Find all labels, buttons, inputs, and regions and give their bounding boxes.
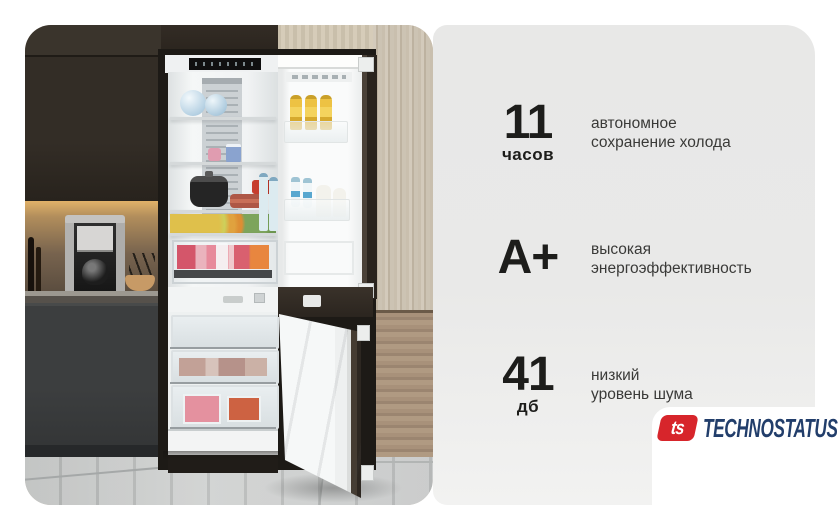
coffee-machine-head bbox=[77, 226, 113, 252]
freezer-drawer bbox=[171, 350, 279, 384]
ice-sphere bbox=[180, 90, 206, 116]
coffee-machine bbox=[65, 215, 125, 293]
cooking-pot bbox=[190, 176, 228, 207]
freezer-drawer bbox=[171, 385, 279, 429]
kitchen-photo bbox=[25, 25, 433, 505]
ts-monogram-text: ts bbox=[670, 419, 685, 438]
spec-energy-value-block: A+ bbox=[473, 238, 583, 281]
door-hinge bbox=[361, 465, 374, 481]
coffee-carafe bbox=[82, 259, 108, 285]
spec-energy-label: высокая энергоэффективность bbox=[591, 241, 806, 279]
control-panel-icons bbox=[195, 62, 255, 66]
base-cabinet bbox=[25, 303, 163, 445]
spec-autonomy-value-block: 11 часов bbox=[473, 103, 583, 164]
door-bin bbox=[284, 121, 348, 143]
crisper-drawer bbox=[172, 240, 278, 284]
fridge-door-open bbox=[278, 55, 377, 299]
frozen-container bbox=[183, 394, 221, 424]
spec-energy-value: A+ bbox=[473, 238, 583, 278]
product-banner: 11 часов автономное сохранение холода A+… bbox=[0, 0, 840, 530]
drawer-rail bbox=[170, 347, 276, 349]
spec-autonomy-value: 11 bbox=[473, 103, 583, 143]
door-bin bbox=[284, 241, 354, 275]
door-top-cap bbox=[278, 55, 362, 69]
dessert bbox=[208, 148, 221, 161]
ice-sphere bbox=[205, 94, 227, 116]
fridge-base-shadow bbox=[163, 451, 280, 461]
spec-autonomy: 11 часов автономное сохранение холода bbox=[473, 103, 806, 164]
spec-noise-level: 41 дб низкий уровень шума bbox=[473, 355, 806, 416]
door-hinge bbox=[358, 57, 374, 72]
wood-cabinet-panel-lower bbox=[370, 310, 433, 481]
countertop bbox=[25, 291, 163, 303]
frozen-container bbox=[227, 396, 261, 422]
water-bottle bbox=[259, 173, 268, 231]
technostatus-logo: ts TECHNOSTATUS bbox=[659, 414, 840, 442]
brand-name: TECHNOSTATUS bbox=[703, 415, 838, 441]
spec-noise-unit: дб bbox=[473, 398, 583, 416]
fridge-control-panel bbox=[189, 58, 261, 70]
spec-noise-value-block: 41 дб bbox=[473, 355, 583, 416]
water-bottle bbox=[269, 177, 278, 231]
frozen-food bbox=[179, 358, 267, 376]
door-shelf-label bbox=[286, 72, 352, 82]
glass-shelf bbox=[170, 117, 276, 120]
brand-emblem bbox=[223, 296, 243, 303]
spec-autonomy-label: автономное сохранение холода bbox=[591, 115, 806, 153]
coffee-machine-side bbox=[116, 223, 125, 293]
glass-shelf bbox=[170, 233, 276, 236]
cabinet-between-doors bbox=[278, 287, 373, 317]
door-hinge bbox=[357, 325, 370, 341]
upper-left-cabinet bbox=[25, 25, 161, 206]
ts-monogram-icon: ts bbox=[656, 415, 699, 441]
spec-autonomy-unit: часов bbox=[473, 146, 583, 164]
spec-noise-label: низкий уровень шума bbox=[591, 367, 806, 405]
wine-bottle bbox=[36, 247, 41, 293]
freezer-interior bbox=[168, 312, 278, 455]
freezer-latch bbox=[303, 295, 321, 307]
wood-cabinet-panel-upper bbox=[370, 25, 433, 312]
drawer-rail bbox=[170, 382, 276, 384]
spec-noise-value: 41 bbox=[473, 355, 583, 395]
wine-bottle bbox=[28, 237, 34, 293]
blue-container bbox=[226, 144, 241, 164]
freezer-drawer bbox=[171, 315, 279, 349]
fridge-freezer-divider bbox=[168, 287, 278, 312]
label-text-marks bbox=[292, 75, 346, 79]
glass-shelf bbox=[170, 162, 276, 165]
door-bin bbox=[284, 199, 350, 221]
door-latch bbox=[254, 293, 265, 303]
drawer-grill bbox=[174, 270, 272, 278]
spec-energy-class: A+ высокая энергоэффективность bbox=[473, 238, 806, 281]
drawer-divider bbox=[216, 243, 228, 273]
pot-lid-knob bbox=[205, 171, 213, 177]
door-edge bbox=[362, 55, 377, 299]
coffee-machine-side bbox=[65, 223, 74, 293]
cabinet-plinth bbox=[25, 445, 165, 457]
